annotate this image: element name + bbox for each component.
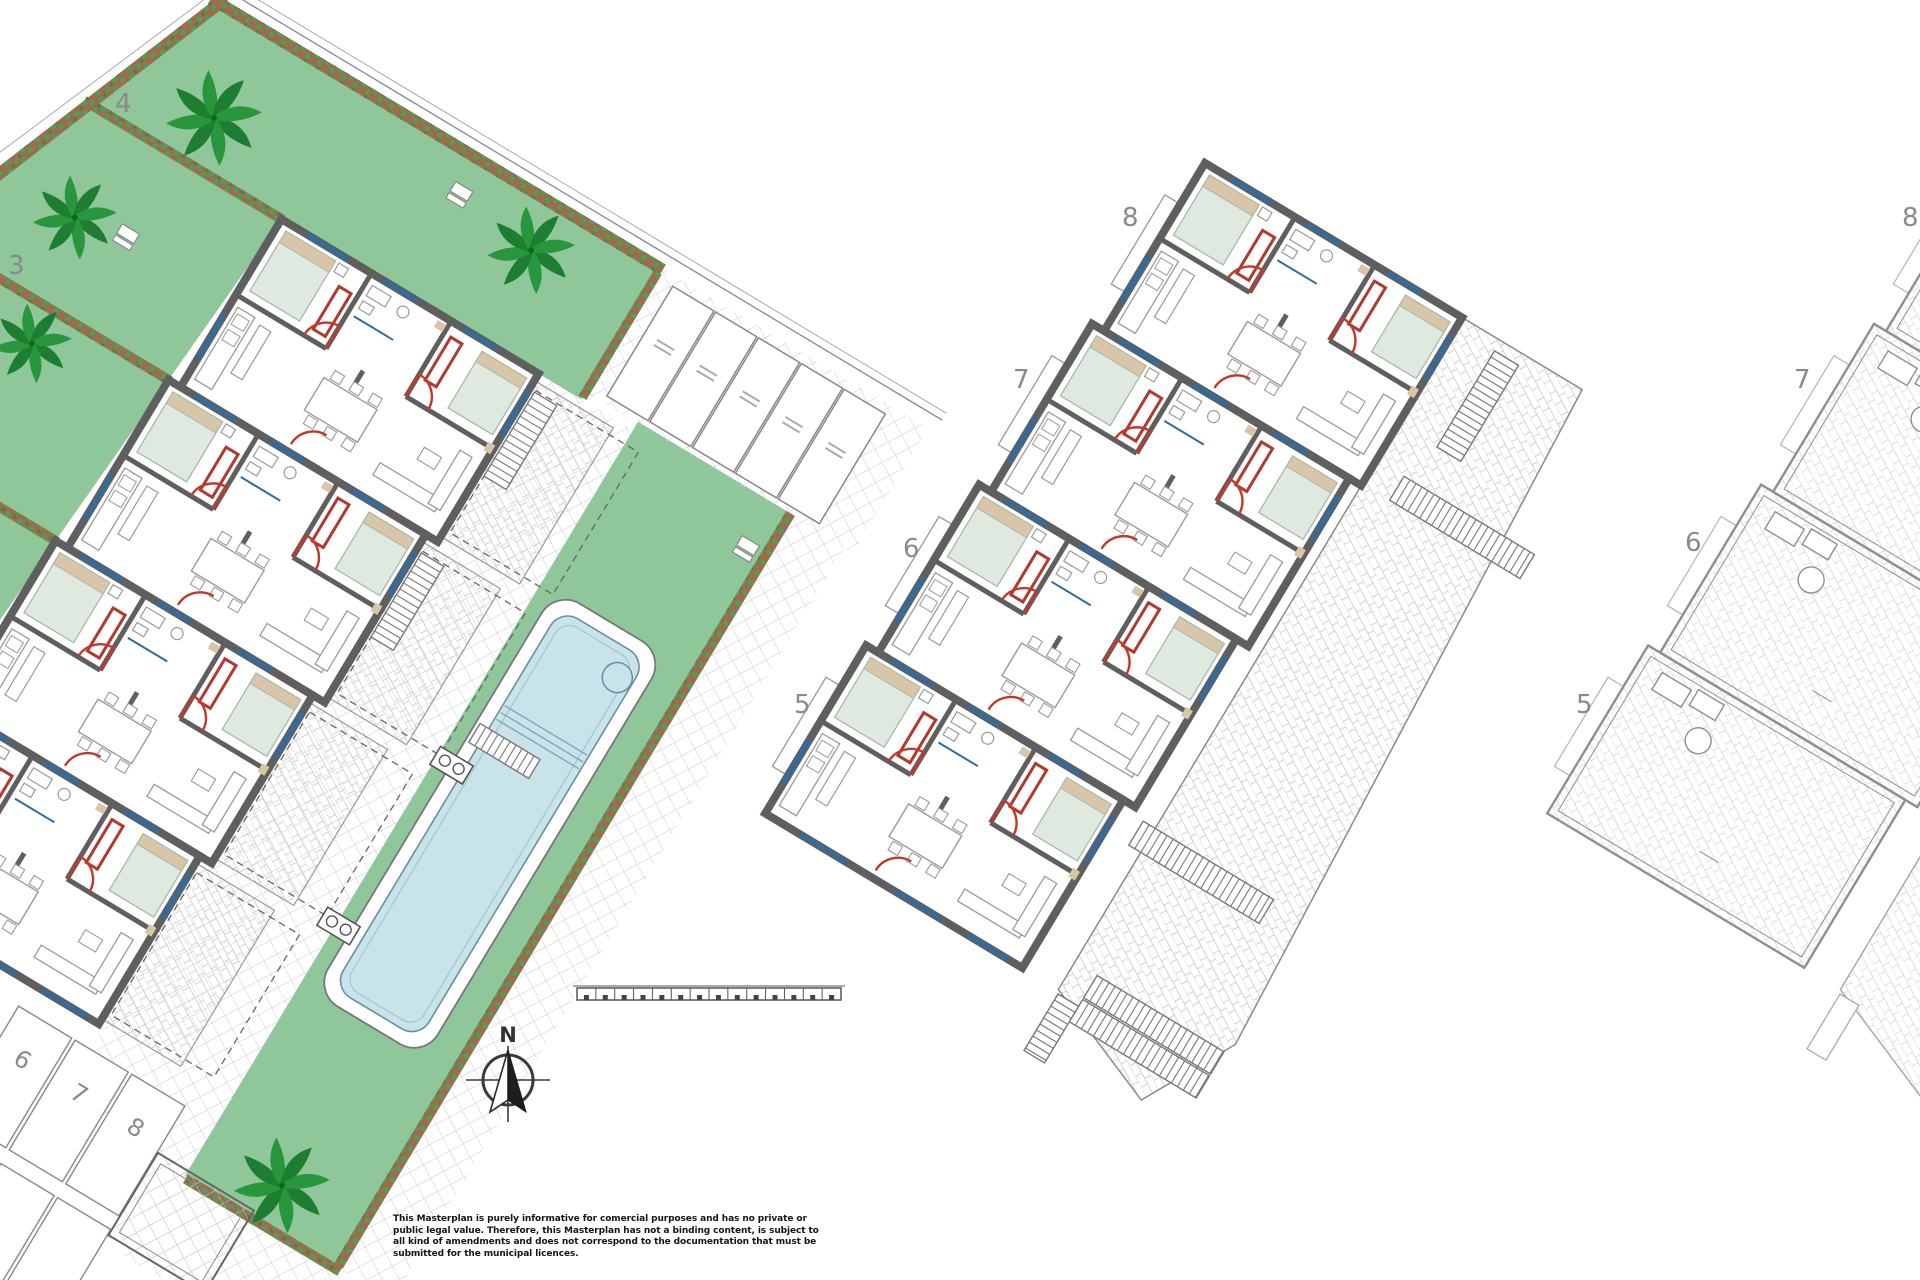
- unit-label: 7: [1794, 365, 1811, 395]
- masterplan-drawing: 678 N 4387658765: [0, 0, 1920, 1280]
- masterplan-page: 678 N 4387658765 This Masterplan is pure…: [0, 0, 1920, 1280]
- north-label: N: [499, 1023, 517, 1047]
- plot-label: 3: [8, 251, 25, 281]
- unit-label: 6: [903, 534, 920, 564]
- exterior-stairs: [1024, 994, 1079, 1063]
- unit-label: 6: [1685, 528, 1702, 558]
- unit-label: 7: [1013, 365, 1030, 395]
- right-building-roof-plan: [1497, 132, 1920, 1140]
- disclaimer-line: This Masterplan is purely informative fo…: [393, 1214, 765, 1226]
- unit-label: 8: [1902, 203, 1919, 233]
- disclaimer-line: public legal value. Therefore, this Mast…: [393, 1226, 765, 1238]
- unit-label: 5: [794, 690, 811, 720]
- middle-building-ground-floor: [714, 132, 1620, 1144]
- disclaimer-line: all kind of amendments and does not corr…: [393, 1237, 765, 1249]
- unit-label: 5: [1576, 690, 1593, 720]
- unit-label: 8: [1122, 203, 1139, 233]
- scale-bar: [573, 986, 845, 1000]
- disclaimer-line: submitted for the municipal licences.: [393, 1249, 765, 1261]
- disclaimer-text: This Masterplan is purely informative fo…: [393, 1214, 765, 1260]
- left-parcel-common-areas: 678: [0, 0, 946, 1280]
- plot-label: 4: [115, 89, 132, 119]
